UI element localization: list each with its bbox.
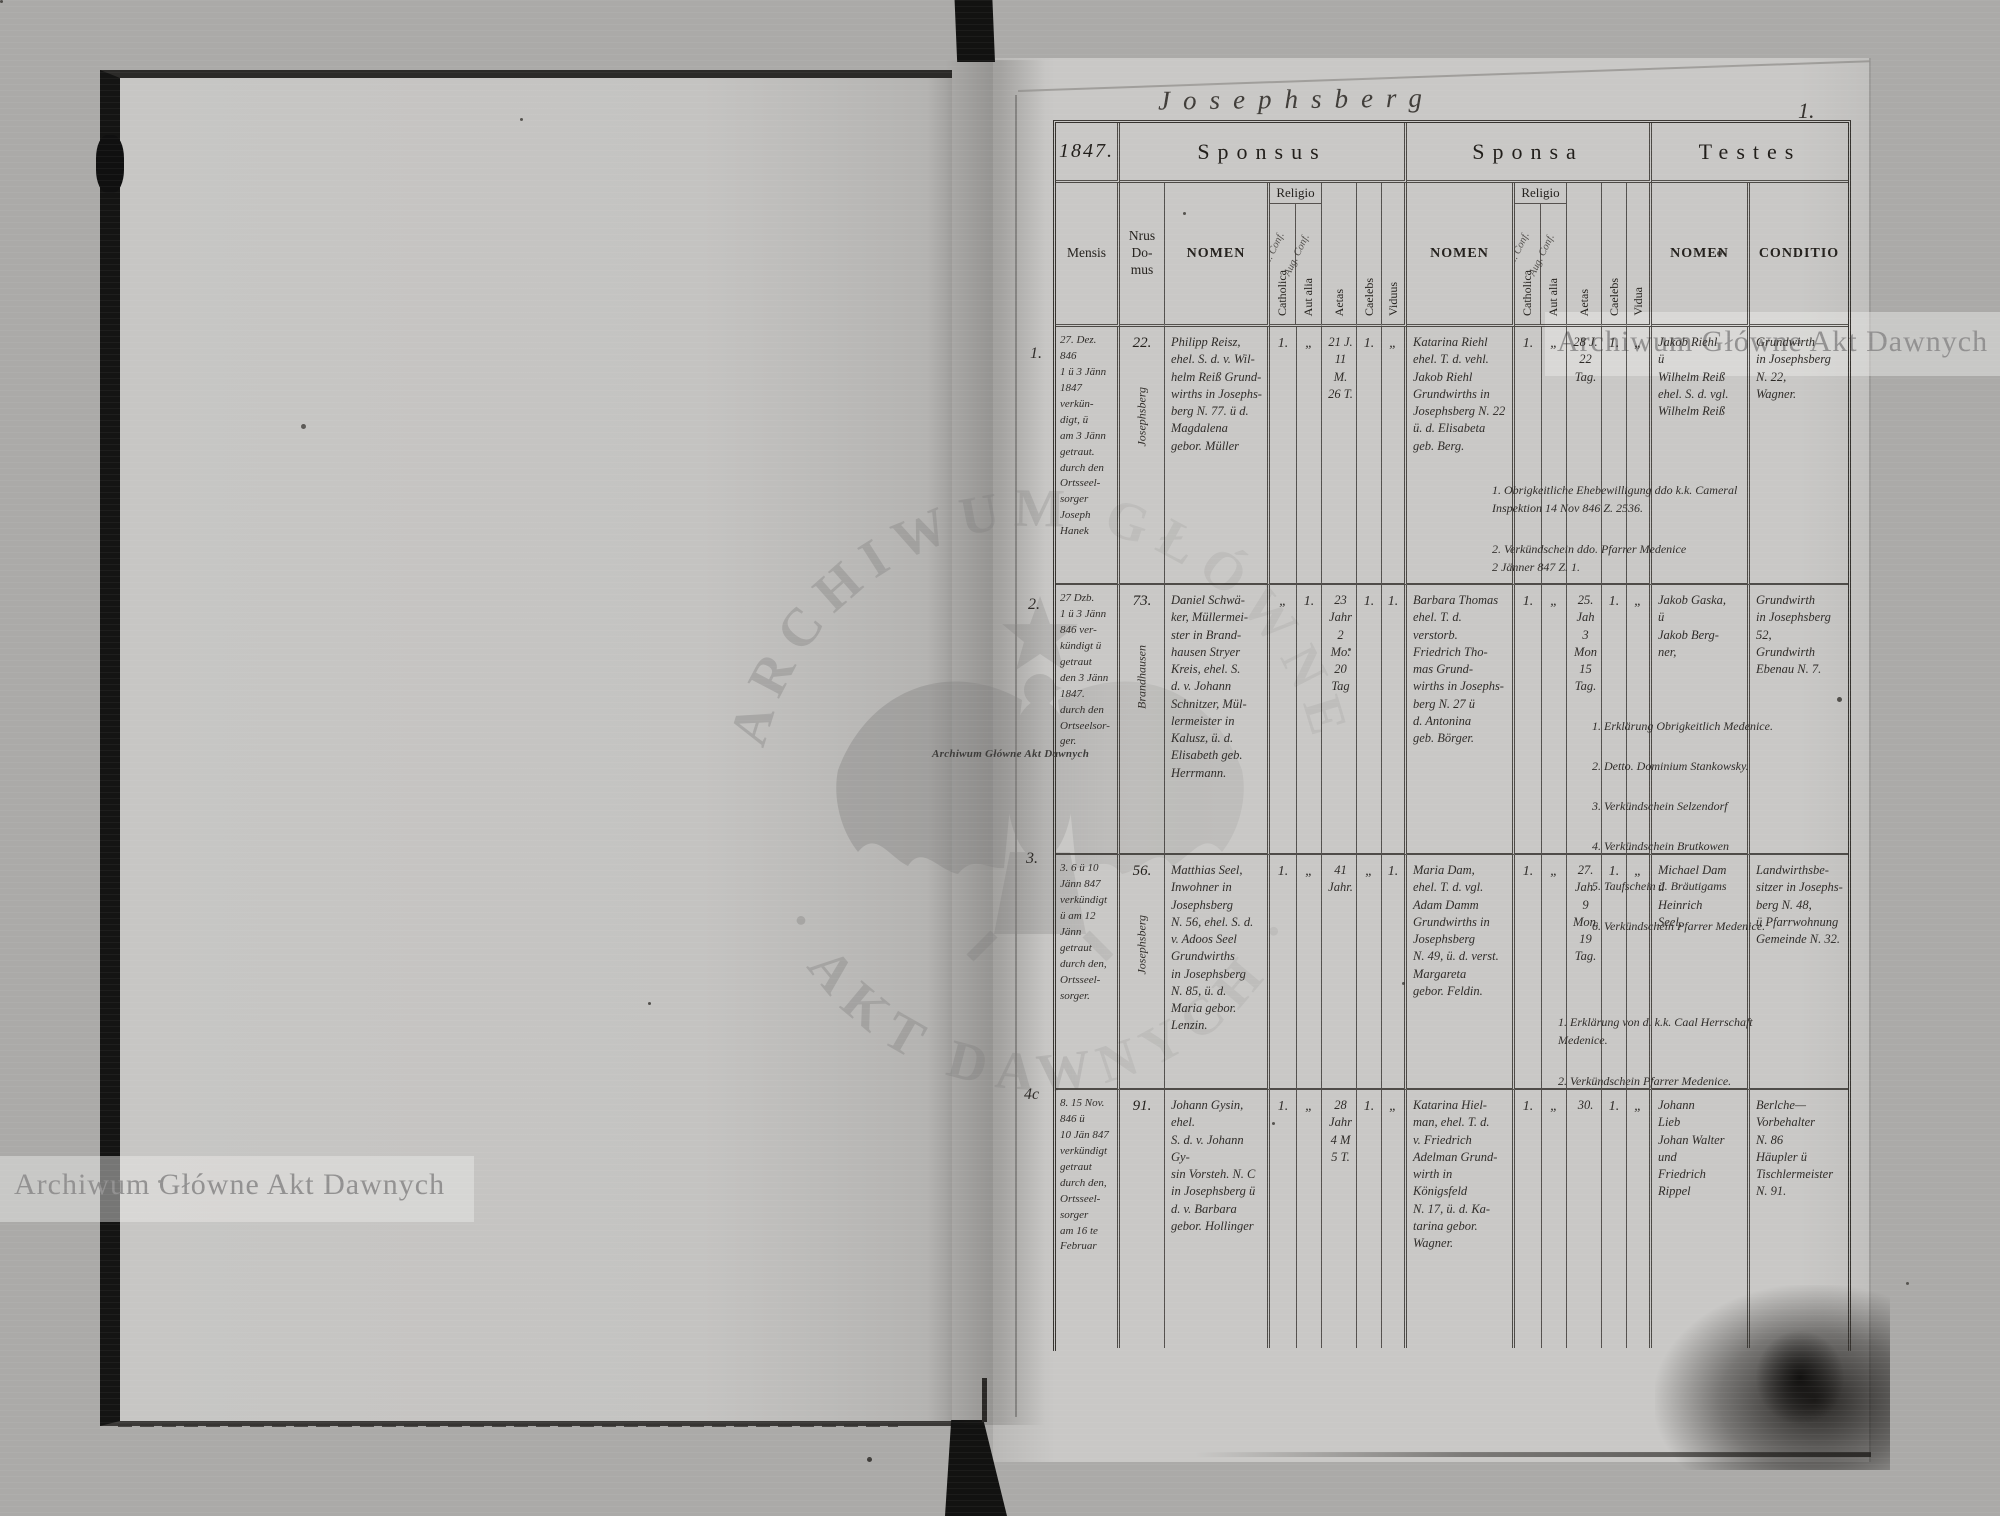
religio-autalia-subcolumn: Aut alia Aug. Conf. bbox=[1540, 204, 1566, 324]
row2-sponsus-age: 23 Jahr 2 Mo. 20 Tag bbox=[1322, 585, 1357, 855]
column-header-domus: Nrus Do- mus bbox=[1120, 183, 1165, 327]
entry-number-1: 1. bbox=[1030, 345, 1042, 363]
column-header-sponsa-caelebs: Caelebs bbox=[1602, 183, 1627, 327]
row4-sponsa-caelebs: 1. bbox=[1602, 1090, 1627, 1348]
row2-sponsa-catholica: 1. bbox=[1515, 585, 1542, 855]
vidua-label: Vidua bbox=[1631, 287, 1646, 316]
row1-sponsus-viduus: „ bbox=[1382, 327, 1407, 585]
row2-sponsa-autalia: „ bbox=[1542, 585, 1567, 855]
archive-watermark-bottom-left: Archiwum Główne Akt Dawnych bbox=[0, 1156, 474, 1222]
row1-footnotes: 1. Obrigkeitliche Ehebewilligung ddo k.k… bbox=[1492, 463, 1844, 599]
entry-number-4: 4c bbox=[1024, 1086, 1039, 1104]
caelebs-label: Caelebs bbox=[1362, 278, 1377, 316]
aetas-label: Aetas bbox=[1332, 289, 1347, 316]
row1-sponsus-catholica: 1. bbox=[1270, 327, 1297, 585]
row3-sponsus-catholica: 1. bbox=[1270, 855, 1297, 1090]
header-year: 1847. bbox=[1056, 123, 1120, 183]
aut-alia-label: Aut alia bbox=[1301, 278, 1316, 316]
row2-mensis: 27 Dzb. 1 ü 3 Jänn 846 ver- kündigt ü ge… bbox=[1056, 585, 1120, 855]
aetas-label: Aetas bbox=[1577, 289, 1592, 316]
row4-sponsa-age: 30. bbox=[1567, 1090, 1602, 1348]
row2-sponsa-name: Barbara Thomas ehel. T. d. verstorb. Fri… bbox=[1407, 585, 1515, 855]
row1-house-cell: 22. Josephsberg bbox=[1120, 327, 1165, 585]
row4-mensis: 8. 15 Nov. 846 ü 10 Jän 847 verkündigt g… bbox=[1056, 1090, 1120, 1348]
row2-sponsus-name: Daniel Schwä- ker, Müllermei- ster in Br… bbox=[1165, 585, 1270, 855]
row4-sponsa-autalia: „ bbox=[1542, 1090, 1567, 1348]
row3-sponsa-name: Maria Dam, ehel. T. d. vgl. Adam Damm Gr… bbox=[1407, 855, 1515, 1090]
column-header-sponsa-vidua: Vidua bbox=[1627, 183, 1652, 327]
dust-specks bbox=[0, 0, 3, 3]
column-header-sponsus-religio: Religio Catholica Helv. Conf. Aut alia A… bbox=[1270, 183, 1322, 327]
column-header-testes-nomen: NOMEN bbox=[1652, 183, 1750, 327]
row3-sponsus-viduus: 1. bbox=[1382, 855, 1407, 1090]
column-header-sponsa-nomen: NOMEN bbox=[1407, 183, 1515, 327]
religio-label: Religio bbox=[1270, 183, 1321, 204]
column-header-mensis: Mensis bbox=[1056, 183, 1120, 327]
column-header-sponsus-nomen: NOMEN bbox=[1165, 183, 1270, 327]
page-corner-line bbox=[982, 1378, 987, 1422]
left-book-cover-page bbox=[100, 70, 952, 1426]
row2-footnote-1: 1. Erklärung Obrigkeitlich Medenice. bbox=[1592, 715, 1848, 737]
row4-house-number: 91. bbox=[1120, 1090, 1164, 1115]
row2-sponsus-viduus: 1. bbox=[1382, 585, 1407, 855]
row2-sponsus-catholica: „ bbox=[1270, 585, 1297, 855]
spine-gap-top bbox=[952, 0, 995, 62]
row4-witness-condition: Berlche— Vorbehalter N. 86 Häupler ü Tis… bbox=[1750, 1090, 1848, 1348]
row3-sponsus-autalia: „ bbox=[1297, 855, 1322, 1090]
row3-place-vertical: Josephsberg bbox=[1135, 915, 1150, 975]
viduus-label: Viduus bbox=[1386, 282, 1401, 316]
row1-footnote-1: 1. Obrigkeitliche Ehebewilligung ddo k.k… bbox=[1492, 481, 1844, 517]
entry-number-3: 3. bbox=[1026, 850, 1038, 868]
entry-number-2: 2. bbox=[1028, 596, 1040, 614]
caelebs-label: Caelebs bbox=[1607, 278, 1622, 316]
cover-edge-clasp bbox=[96, 135, 124, 193]
row4-sponsa-catholica: 1. bbox=[1515, 1090, 1542, 1348]
row1-mensis: 27. Dez. 846 1 ü 3 Jänn 1847 verkün- dig… bbox=[1056, 327, 1120, 585]
row1-sponsus-age: 21 J. 11 M. 26 T. bbox=[1322, 327, 1357, 585]
row1-house-number: 22. bbox=[1120, 327, 1164, 352]
row3-sponsus-age: 41 Jahr. bbox=[1322, 855, 1357, 1090]
row3-footnote-2: 2. Verkündschein Pfarrer Medenice. bbox=[1558, 1072, 1850, 1090]
row2-house-cell: 73. Brandhausen bbox=[1120, 585, 1165, 855]
row3-house-cell: 56. Josephsberg bbox=[1120, 855, 1165, 1090]
row1-footnote-2: 2. Verkündschein ddo. Pfarrer Medenice 2… bbox=[1492, 540, 1844, 576]
row2-footnote-6: 6. Verkündschein Pfarrer Medenice. bbox=[1592, 915, 1848, 937]
page-title-handwritten: Josephsberg bbox=[1158, 83, 1435, 117]
archival-scan: ARCHIWUM GŁÓWNE · AKT DAWNYCH · Archiwum… bbox=[0, 0, 2000, 1516]
row4-sponsa-vidua: „ bbox=[1627, 1090, 1652, 1348]
row2-footnotes: 1. Erklärung Obrigkeitlich Medenice. 2. … bbox=[1592, 697, 1848, 955]
row2-sponsus-caelebs: 1. bbox=[1357, 585, 1382, 855]
header-group-sponsus: Sponsus bbox=[1120, 123, 1407, 183]
row2-footnote-5: 5. Taufschein d. Bräutigams bbox=[1592, 875, 1848, 897]
row1-sponsus-caelebs: 1. bbox=[1357, 327, 1382, 585]
row2-place-vertical: Brandhausen bbox=[1135, 645, 1150, 709]
left-page-bottom-edge bbox=[118, 1424, 898, 1427]
row3-footnotes: 1. Erklärung von d. k.k. Caal Herrschaft… bbox=[1558, 995, 1850, 1113]
row3-house-number: 56. bbox=[1120, 855, 1164, 880]
row3-footnote-1: 1. Erklärung von d. k.k. Caal Herrschaft… bbox=[1558, 1013, 1850, 1049]
catholica-label: Catholica bbox=[1275, 270, 1290, 316]
row4-sponsus-caelebs: 1. bbox=[1357, 1090, 1382, 1348]
row2-footnote-3: 3. Verkündschein Selzendorf bbox=[1592, 795, 1848, 817]
row2-house-number: 73. bbox=[1120, 585, 1164, 610]
column-header-sponsus-caelebs: Caelebs bbox=[1357, 183, 1382, 327]
row3-sponsus-name: Matthias Seel, Inwohner in Josephsberg N… bbox=[1165, 855, 1270, 1090]
header-group-testes: Testes bbox=[1652, 123, 1848, 183]
row4-witness-names: Johann Lieb Johan Walter und Friedrich R… bbox=[1652, 1090, 1750, 1348]
aut-alia-label: Aut alia bbox=[1546, 278, 1561, 316]
religio-label: Religio bbox=[1515, 183, 1566, 204]
row1-place-vertical: Josephsberg bbox=[1135, 387, 1150, 447]
row4-sponsus-catholica: 1. bbox=[1270, 1090, 1297, 1348]
header-group-sponsa: Sponsa bbox=[1407, 123, 1652, 183]
row2-footnote-2: 2. Detto. Dominium Stankowsky. bbox=[1592, 755, 1848, 777]
row1-sponsus-autalia: „ bbox=[1297, 327, 1322, 585]
column-header-sponsus-viduus: Viduus bbox=[1382, 183, 1407, 327]
religio-autalia-subcolumn: Aut alia Aug. Conf. bbox=[1295, 204, 1321, 324]
row4-sponsa-name: Katarina Hiel- man, ehel. T. d. v. Fried… bbox=[1407, 1090, 1515, 1348]
column-header-sponsa-aetas: Aetas bbox=[1567, 183, 1602, 327]
row4-sponsus-autalia: „ bbox=[1297, 1090, 1322, 1348]
row3-sponsus-caelebs: „ bbox=[1357, 855, 1382, 1090]
row4-house-cell: 91. bbox=[1120, 1090, 1165, 1348]
row4-sponsus-name: Johann Gysin, ehel. S. d. v. Johann Gy- … bbox=[1165, 1090, 1270, 1348]
column-header-testes-conditio: CONDITIO bbox=[1750, 183, 1848, 327]
row1-sponsus-name: Philipp Reisz, ehel. S. d. v. Wil- helm … bbox=[1165, 327, 1270, 585]
row2-sponsus-autalia: 1. bbox=[1297, 585, 1322, 855]
row3-mensis: 3. 6 ü 10 Jänn 847 verkündigt ü am 12 Jä… bbox=[1056, 855, 1120, 1090]
marriage-register-table: 1847. Sponsus Sponsa Testes Mensis Nrus … bbox=[1053, 120, 1851, 1351]
row2-footnote-4: 4. Verkündschein Brutkowen bbox=[1592, 835, 1848, 857]
column-header-sponsus-aetas: Aetas bbox=[1322, 183, 1357, 327]
catholica-label: Catholica bbox=[1520, 270, 1535, 316]
row4-sponsus-viduus: „ bbox=[1382, 1090, 1407, 1348]
column-header-sponsa-religio: Religio Catholica Helv. Conf. Aut alia A… bbox=[1515, 183, 1567, 327]
row3-sponsa-catholica: 1. bbox=[1515, 855, 1542, 1090]
row4-sponsus-age: 28 Jahr 4 M 5 T. bbox=[1322, 1090, 1357, 1348]
